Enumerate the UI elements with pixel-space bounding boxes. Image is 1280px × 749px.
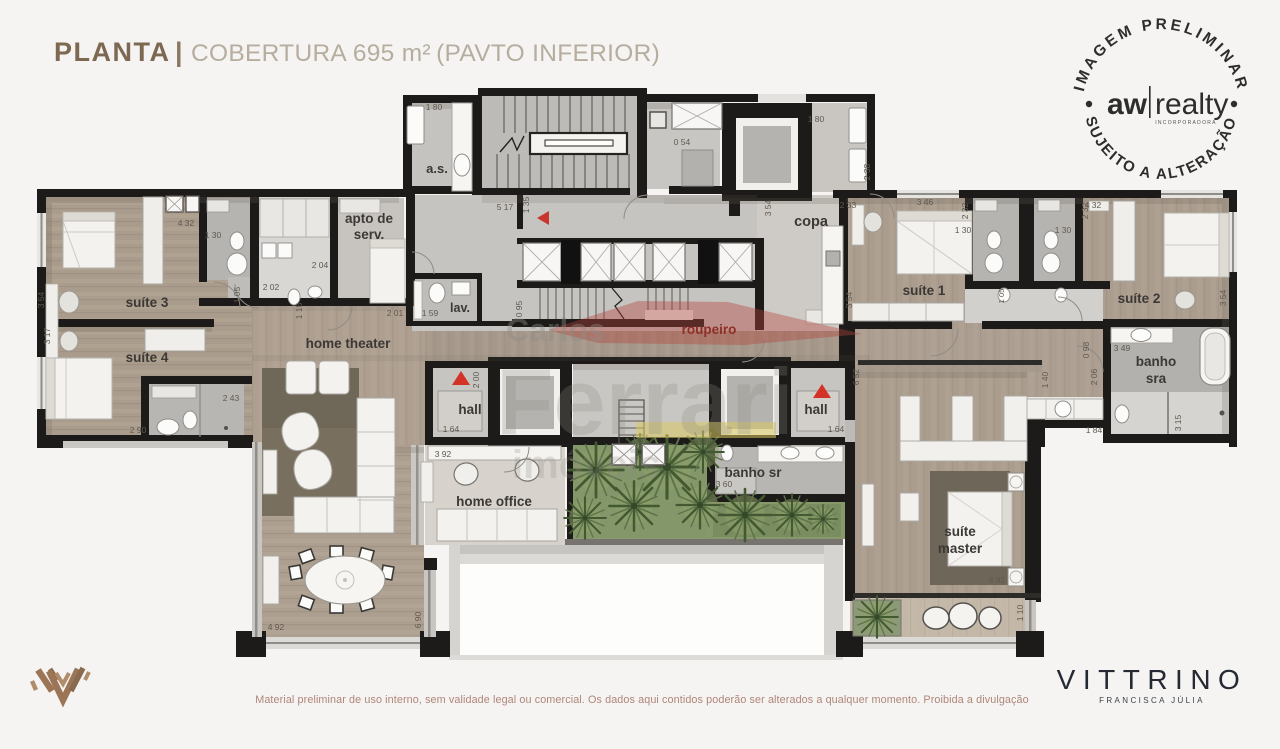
svg-text:1 64: 1 64 [828,424,845,434]
svg-text:2 32: 2 32 [1080,202,1090,219]
svg-text:VITTRINO: VITTRINO [1057,664,1248,695]
svg-text:suíte 4: suíte 4 [126,350,169,365]
svg-text:home theater: home theater [306,336,392,351]
svg-text:aw: aw [1107,88,1148,121]
svg-text:FRANCISCA JÚLIA: FRANCISCA JÚLIA [1099,696,1205,705]
svg-text:suíte 3: suíte 3 [126,295,169,310]
svg-text:|: | [175,37,183,67]
svg-text:COBERTURA 695 m² (PAVTO INFERI: COBERTURA 695 m² (PAVTO INFERIOR) [191,40,660,67]
svg-text:5 17: 5 17 [497,202,514,212]
svg-text:banho sr: banho sr [724,465,782,480]
svg-text:3 15: 3 15 [1173,414,1183,431]
svg-text:4 32: 4 32 [178,218,195,228]
svg-text:4 92: 4 92 [268,622,285,632]
svg-text:0 98: 0 98 [1081,341,1091,358]
svg-text:lav.: lav. [450,301,470,315]
svg-text:a.s.: a.s. [426,161,448,176]
svg-text:2 32: 2 32 [960,202,970,219]
svg-text:1 30: 1 30 [1055,225,1072,235]
svg-text:sra: sra [1146,371,1167,386]
svg-text:apto de: apto de [345,211,393,226]
svg-text:3 49: 3 49 [1114,343,1131,353]
svg-text:3 54: 3 54 [36,291,46,308]
svg-text:1 05: 1 05 [997,289,1006,304]
svg-text:1 30: 1 30 [955,225,972,235]
svg-text:Carlos: Carlos [506,312,606,348]
svg-text:banho: banho [1136,354,1177,369]
svg-text:2 43: 2 43 [223,393,240,403]
svg-text:2 38: 2 38 [862,163,872,180]
svg-text:1 80: 1 80 [426,102,443,112]
svg-text:1 64: 1 64 [443,424,460,434]
svg-text:2 01: 2 01 [387,308,404,318]
svg-text:3 46: 3 46 [917,197,934,207]
svg-text:hall: hall [458,402,481,417]
svg-text:1 40: 1 40 [1040,371,1050,388]
svg-text:home office: home office [456,494,532,509]
svg-text:6 90: 6 90 [413,611,423,628]
svg-text:3 92: 3 92 [435,449,452,459]
svg-text:2 00: 2 00 [471,371,481,388]
svg-text:1 10: 1 10 [1015,604,1025,621]
svg-text:0 54: 0 54 [674,137,691,147]
svg-text:1 59: 1 59 [422,308,439,318]
svg-text:1 05: 1 05 [232,286,242,303]
svg-text:1 35: 1 35 [521,196,531,213]
svg-text:suíte 2: suíte 2 [1118,291,1161,306]
svg-text:1 15: 1 15 [294,302,304,319]
svg-text:6 52: 6 52 [851,368,861,385]
svg-text:1 84: 1 84 [1086,425,1103,435]
svg-text:3 54: 3 54 [763,199,773,216]
svg-text:copa: copa [794,214,829,230]
svg-text:3 54: 3 54 [1218,289,1228,306]
svg-text:2 06: 2 06 [1089,368,1099,385]
svg-text:2 02: 2 02 [263,282,280,292]
svg-text:Material preliminar de uso int: Material preliminar de uso interno, sem … [255,694,1029,706]
svg-text:3 17: 3 17 [42,327,52,344]
svg-text:4 92: 4 92 [989,575,1006,585]
svg-text:2 90: 2 90 [130,425,147,435]
svg-text:suíte 1: suíte 1 [903,283,946,298]
svg-text:1 30: 1 30 [205,230,222,240]
svg-text:3 54: 3 54 [844,291,854,308]
svg-text:PLANTA: PLANTA [54,37,171,67]
svg-text:2 33: 2 33 [840,200,857,210]
svg-text:INCORPORADORA: INCORPORADORA [1155,120,1217,126]
svg-text:suíte: suíte [944,524,976,539]
svg-text:serv.: serv. [354,227,385,242]
svg-text:hall: hall [804,402,827,417]
svg-text:Ferrari: Ferrari [496,349,794,454]
svg-text:realty: realty [1155,88,1228,121]
svg-text:imóveis: imóveis [512,443,661,487]
svg-text:2 04: 2 04 [312,260,329,270]
svg-text:master: master [938,541,983,556]
svg-text:1 80: 1 80 [808,114,825,124]
svg-text:3 60: 3 60 [716,479,733,489]
